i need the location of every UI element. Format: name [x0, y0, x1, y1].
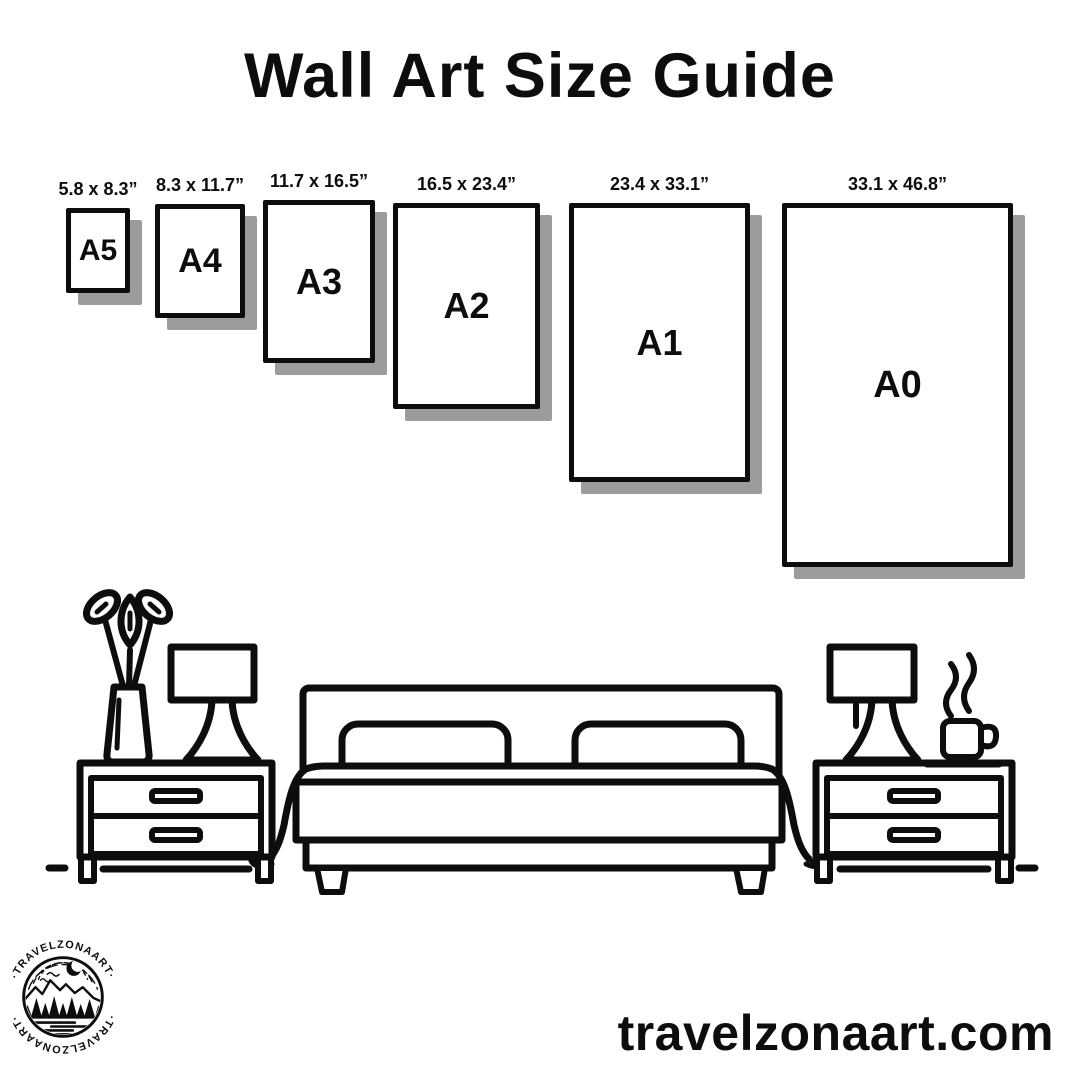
- cup-body: [943, 721, 981, 757]
- bedroom-illustration: [0, 580, 1080, 900]
- lamp-base: [186, 700, 258, 760]
- lamp-shade: [830, 647, 914, 700]
- lamp-shade: [171, 647, 254, 700]
- website-url: travelzonaart.com: [618, 1004, 1054, 1062]
- paper-a0: A0: [782, 203, 1013, 567]
- paper-a2: A2: [393, 203, 540, 409]
- size-card-a5: 5.8 x 8.3” A5: [66, 208, 130, 293]
- paper-a4: A4: [155, 204, 245, 318]
- bed-leg-left: [317, 868, 346, 892]
- size-dims-label-a4: 8.3 x 11.7”: [156, 175, 244, 196]
- size-dims-label-a1: 23.4 x 33.1”: [610, 174, 709, 195]
- size-dims-label-a2: 16.5 x 23.4”: [417, 174, 516, 195]
- flower-vase-icon: [81, 587, 175, 762]
- steam-icon: [946, 664, 956, 716]
- size-card-a4: 8.3 x 11.7” A4: [155, 204, 245, 318]
- table-lamp-left-icon: [171, 647, 258, 760]
- size-card-a1: 23.4 x 33.1” A1: [569, 203, 750, 482]
- nightstand-right-icon: [816, 763, 1012, 881]
- size-letter-a1: A1: [636, 325, 682, 361]
- brand-logo: ·TRAVELZONAART· ·TRAVELZONAART·: [4, 938, 122, 1056]
- double-bed-icon: [251, 688, 827, 892]
- wall-art-size-guide-poster: Wall Art Size Guide 5.8 x 8.3” A5 8.3 x …: [0, 0, 1080, 1080]
- size-card-a2: 16.5 x 23.4” A2: [393, 203, 540, 409]
- size-card-a3: 11.7 x 16.5” A3: [263, 200, 375, 363]
- paper-a1: A1: [569, 203, 750, 482]
- size-dims-label-a5: 5.8 x 8.3”: [58, 179, 137, 200]
- vase-body: [107, 687, 149, 762]
- page-title: Wall Art Size Guide: [0, 40, 1080, 112]
- size-letter-a3: A3: [296, 264, 342, 300]
- size-dims-label-a0: 33.1 x 46.8”: [848, 174, 947, 195]
- size-letter-a0: A0: [873, 366, 922, 404]
- bed-frame: [306, 840, 772, 868]
- size-letter-a2: A2: [443, 288, 489, 324]
- nightstand-left-icon: [80, 763, 272, 881]
- size-card-a0: 33.1 x 46.8” A0: [782, 203, 1013, 567]
- bed-leg-right: [736, 868, 765, 892]
- vase-highlight: [117, 700, 119, 748]
- size-letter-a4: A4: [178, 244, 221, 278]
- table-lamp-right-icon: [830, 647, 918, 760]
- mattress: [296, 782, 782, 840]
- size-letter-a5: A5: [79, 236, 117, 266]
- paper-a3: A3: [263, 200, 375, 363]
- coffee-cup-icon: [927, 655, 999, 764]
- paper-a5: A5: [66, 208, 130, 293]
- size-dims-label-a3: 11.7 x 16.5”: [270, 171, 368, 192]
- steam-icon: [964, 655, 974, 711]
